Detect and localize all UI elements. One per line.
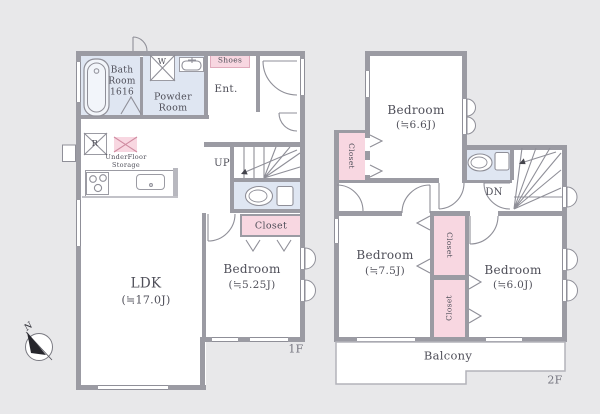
wall (234, 178, 305, 182)
closet-2f-a-label: Closet (445, 232, 453, 258)
entrance-door-opening (300, 59, 305, 95)
window (98, 385, 168, 390)
window (250, 337, 288, 342)
bathroom-label-2: Room (108, 78, 135, 87)
window (300, 280, 305, 301)
wall (365, 178, 439, 183)
fridge-label: R (92, 140, 99, 149)
floor-area-2f-top (365, 51, 467, 148)
floor-2f-label: 2F (547, 375, 562, 386)
window (76, 200, 81, 246)
closet-1f-label: Closet (255, 221, 287, 231)
wall (204, 142, 305, 147)
wall (498, 211, 567, 216)
wall (256, 51, 260, 112)
window (562, 187, 567, 207)
bedroom-60-name-label: Bedroom (484, 264, 541, 276)
window (334, 219, 339, 243)
window (212, 337, 238, 342)
bedroom-75-name-label: Bedroom (356, 249, 413, 261)
wall (334, 211, 402, 216)
window (562, 249, 567, 270)
wall (140, 57, 143, 115)
ldk-size-label: (≒17.0J) (121, 295, 170, 306)
closet-2f-b-label: Closet (445, 295, 453, 321)
floor-plan-canvas: N Bath Room 1616 Powder Room Shoes Ent. … (0, 0, 600, 414)
bedroom-66-size-label: (≒6.6J) (396, 120, 436, 131)
kitchen-sink-icon (136, 174, 165, 190)
wall (430, 211, 470, 216)
wall (76, 115, 209, 119)
window (76, 62, 81, 102)
closet-2f-top-label: Closet (347, 143, 355, 169)
toilet-1f-floor (234, 182, 300, 209)
bathroom-label-1: Bath (111, 67, 134, 76)
floor-area-ldk-lower (76, 342, 206, 390)
bedroom-1f-size-label: (≒5.25J) (229, 280, 276, 291)
entrance-label: Ent. (214, 84, 237, 95)
wall (462, 145, 567, 150)
underfloor-storage-label-2: Storage (112, 162, 140, 169)
compass-north-label: N (22, 320, 36, 334)
wall (365, 133, 370, 138)
wall (462, 180, 512, 183)
powder-room-label-1: Powder (154, 92, 192, 102)
window (357, 337, 415, 342)
bedroom-1f-name-label: Bedroom (223, 263, 280, 275)
underfloor-storage-hatch (114, 137, 137, 152)
balcony-label: Balcony (424, 350, 472, 362)
wall (204, 51, 208, 115)
wall (462, 148, 467, 183)
wall (200, 337, 205, 390)
wall (510, 148, 514, 180)
counter-end-panel (173, 168, 178, 197)
powder-sink-icon (179, 57, 204, 72)
floor-1f-label: 1F (288, 344, 303, 355)
wall (365, 51, 467, 56)
wall (430, 275, 469, 280)
wall (202, 213, 206, 342)
stove-icon (86, 172, 109, 195)
ldk-name-label: LDK (131, 277, 162, 291)
window (562, 280, 567, 301)
wall (76, 51, 305, 56)
bathroom-label-3: 1616 (110, 89, 134, 98)
stairs-down-label: DN (485, 188, 502, 198)
window (365, 71, 370, 97)
underfloor-storage-label-1: UnderFloor (105, 154, 146, 161)
bedroom-60-size-label: (≒6.0J) (493, 280, 533, 291)
shoes-label: Shoes (218, 56, 242, 64)
powder-room-label-2: Room (159, 103, 188, 113)
wall (365, 151, 370, 160)
window (462, 99, 467, 134)
window (300, 248, 305, 269)
stairs-up-label: UP (214, 159, 230, 169)
bedroom-66-name-label: Bedroom (387, 104, 444, 116)
toilet-2f-floor (467, 150, 510, 180)
kitchen-floor-line (82, 196, 178, 198)
compass-icon: N (22, 320, 53, 361)
window (486, 337, 522, 342)
washer-label: W (158, 58, 167, 66)
wall (562, 145, 567, 342)
bedroom-75-size-label: (≒7.5J) (365, 266, 405, 277)
wall (234, 209, 305, 213)
